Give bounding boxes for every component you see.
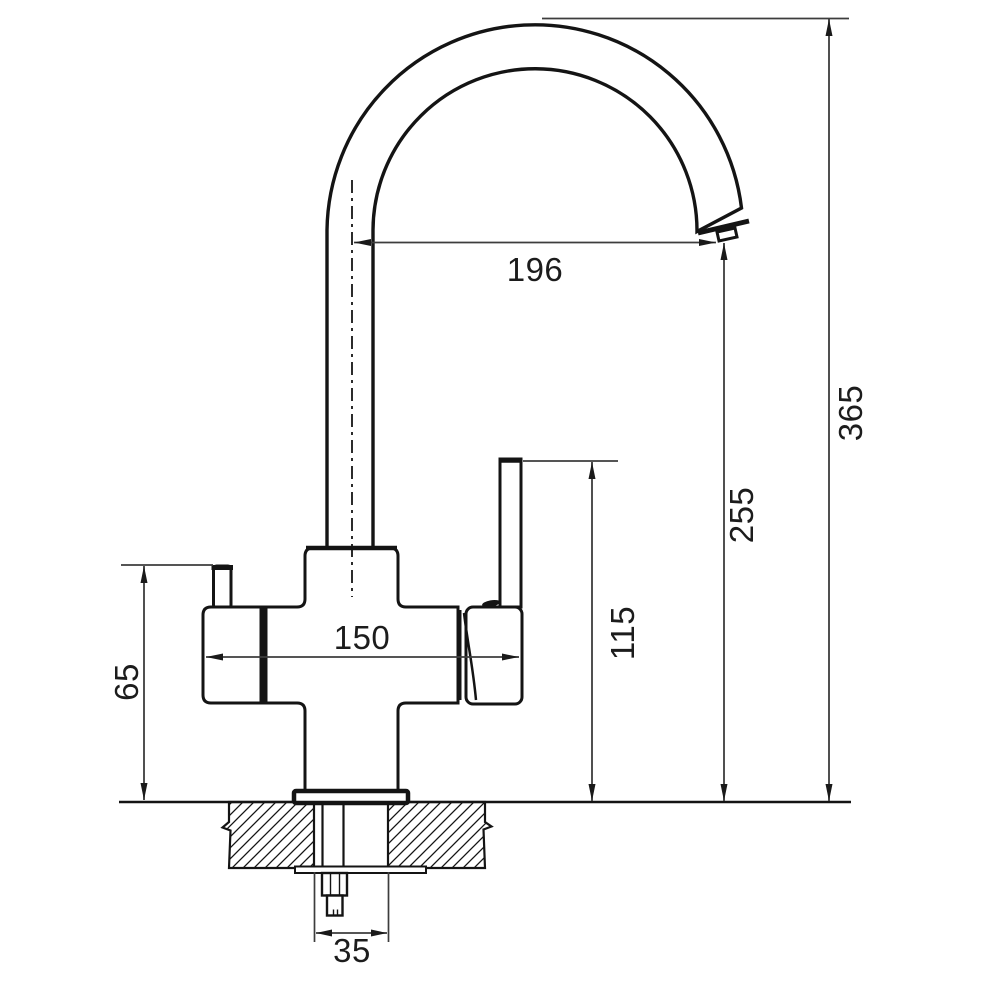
mounting-nut: [322, 873, 347, 896]
spout: [306, 25, 749, 597]
left-lever: [214, 566, 232, 608]
left-arm-ring: [260, 607, 268, 703]
mounting-flange: [294, 791, 408, 803]
dim-label-overall-height: 365: [832, 385, 869, 442]
arrow-down: [721, 784, 728, 801]
dim-label-hole-diameter: 35: [333, 932, 371, 969]
dim-handle-height: [589, 462, 596, 801]
arrow-left: [316, 930, 332, 937]
arrow-right: [699, 239, 716, 246]
arrow-down: [589, 784, 596, 801]
arrow-up: [826, 19, 833, 36]
faucet-body: [203, 548, 522, 803]
arrow-right: [371, 930, 387, 937]
dim-label-outlet-height: 255: [723, 487, 760, 544]
arrow-down: [826, 784, 833, 801]
right-handle-lever: [500, 459, 521, 607]
drawing-canvas: 196 365 255 115 150 65 35: [0, 0, 1000, 1000]
dim-spout-reach: [354, 239, 716, 246]
dim-label-lever-height: 65: [108, 663, 145, 701]
threaded-stud: [327, 896, 343, 916]
arrow-up: [589, 462, 596, 479]
dim-label-spout-reach: 196: [507, 251, 564, 288]
arrow-down: [141, 783, 148, 800]
dim-label-overall-width: 150: [334, 619, 391, 656]
faucet-dimension-drawing: 196 365 255 115 150 65 35: [0, 0, 1000, 1000]
countertop-section: [223, 802, 492, 868]
arrow-up: [141, 566, 148, 583]
dim-label-handle-height: 115: [604, 606, 641, 660]
spout-aerator: [717, 228, 737, 241]
countertop-section-right: [388, 802, 492, 868]
countertop-section-left: [223, 802, 315, 868]
body-outline: [203, 548, 458, 791]
arrow-up: [721, 243, 728, 260]
